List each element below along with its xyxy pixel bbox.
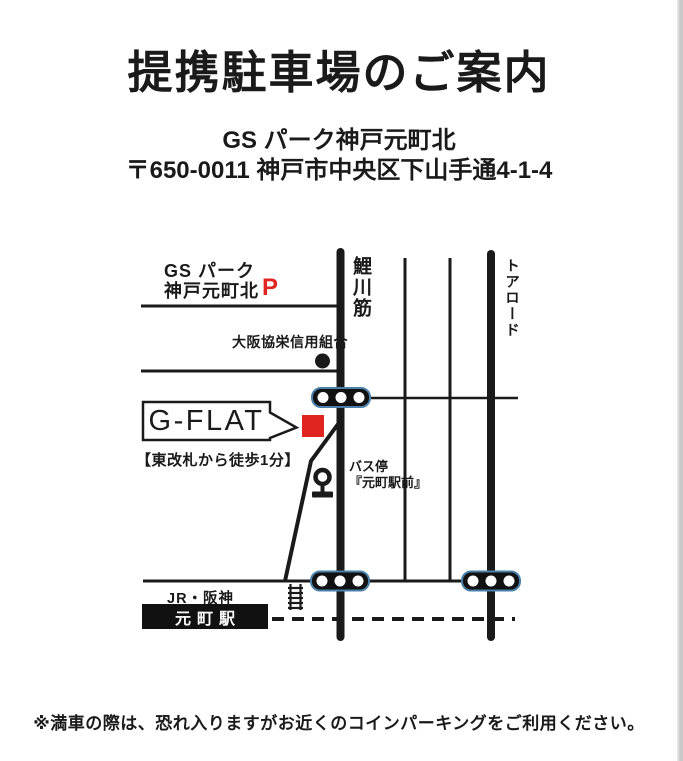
stairs-icon [288, 584, 303, 610]
road-label-toa-road: トアロード [501, 258, 522, 338]
parking-p-icon: P [262, 274, 278, 302]
access-map [0, 236, 683, 646]
destination-name-label: G-FLAT [143, 402, 270, 440]
road-label-koikawasuji: 鯉川筋 [347, 256, 374, 319]
parking-name-line2: 神戸元町北 [164, 281, 259, 301]
bus-stop-label: バス停 『元町駅前』 [349, 459, 427, 491]
bus-stop-label-line2: 『元町駅前』 [349, 475, 427, 491]
walk-time-note: 【東改札から徒歩1分】 [136, 449, 300, 470]
page-edge-shadow [677, 0, 683, 761]
traffic-signal-icon [311, 572, 369, 591]
bank-label: 大阪協栄信用組合 [232, 332, 348, 352]
traffic-signal-icon [312, 388, 370, 407]
map-drawing [0, 0, 683, 761]
footer-note: ※満車の際は、恐れ入りますがお近くのコインパーキングをご利用ください。 [0, 709, 678, 734]
traffic-signal-icon [462, 572, 520, 591]
road-diagonal-line [285, 420, 341, 581]
parking-name-line1: GS パーク [164, 261, 259, 281]
bank-dot-icon [315, 354, 330, 369]
station-name-label: 元町駅 [142, 604, 268, 629]
parking-name-label: GS パーク 神戸元町北 [164, 261, 259, 301]
bus-stop-label-line1: バス停 [349, 459, 427, 475]
destination-marker-icon [302, 415, 324, 437]
bus-stop-icon [312, 470, 333, 498]
